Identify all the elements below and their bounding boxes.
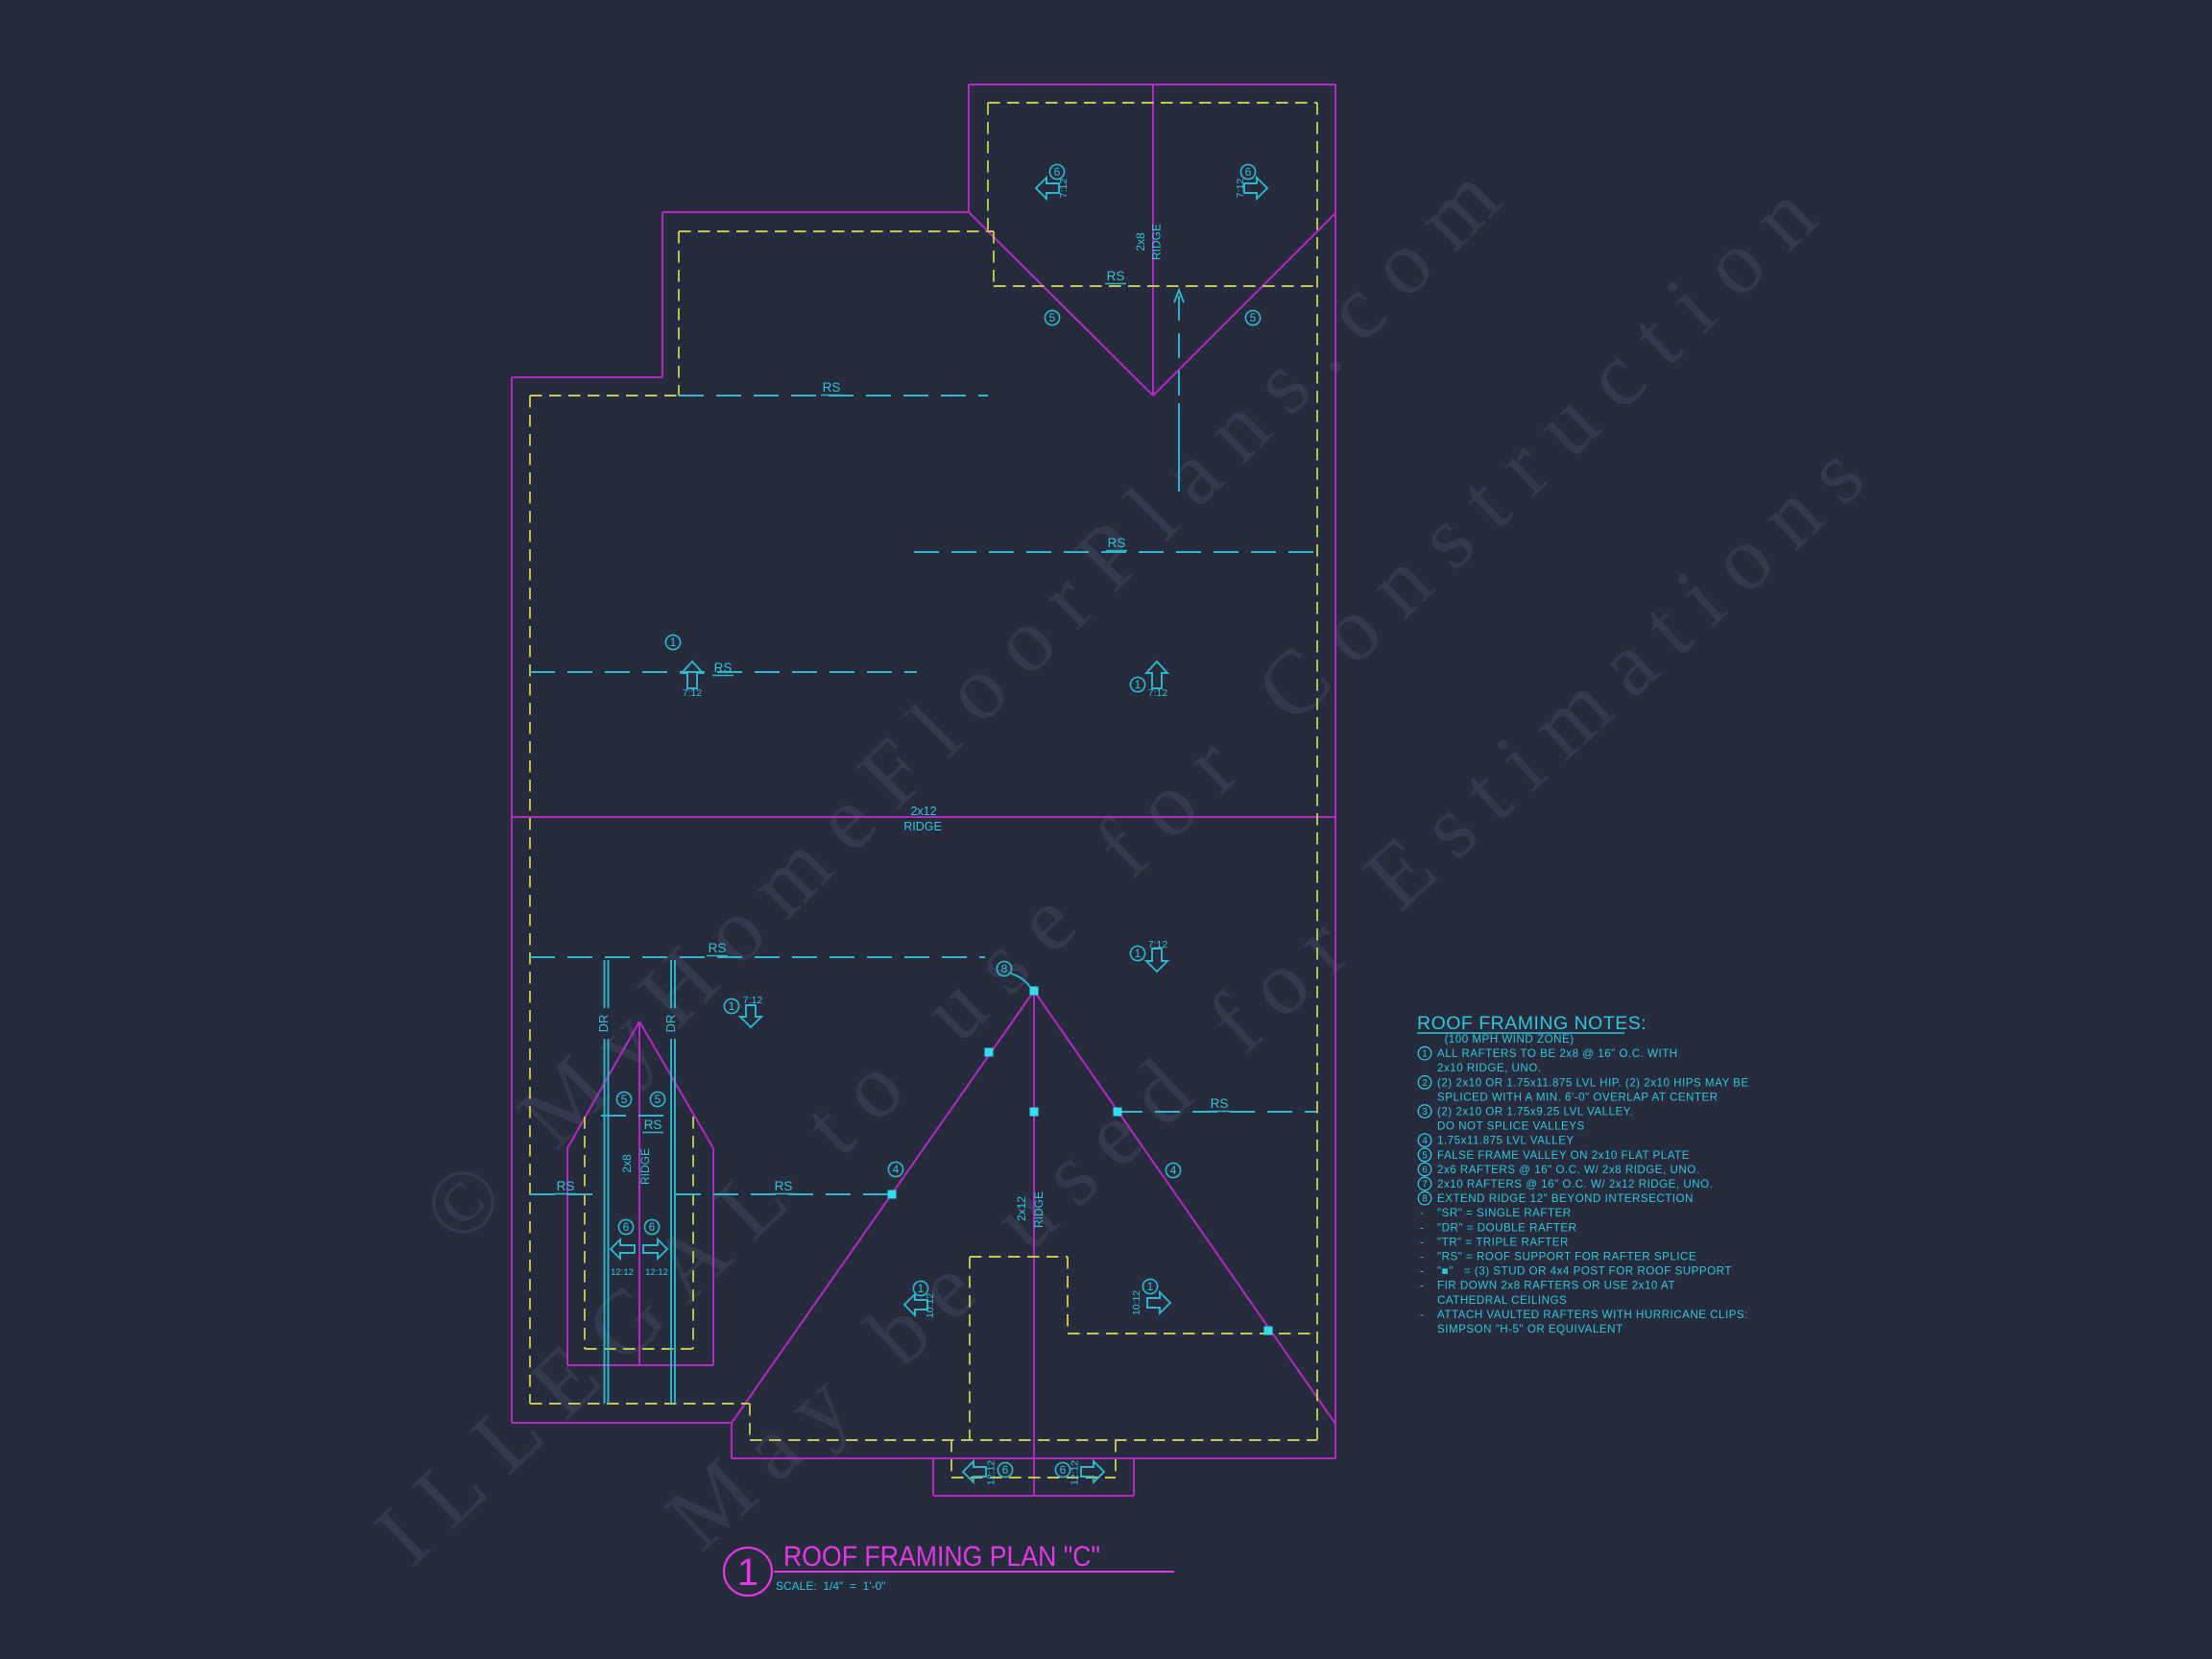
svg-text:-: - [1420,1265,1424,1278]
svg-text:2x10 RAFTERS @ 16" O.C. W/ 2x1: 2x10 RAFTERS @ 16" O.C. W/ 2x12 RIDGE, U… [1437,1178,1713,1190]
svg-text:1.75x11.875 LVL VALLEY: 1.75x11.875 LVL VALLEY [1437,1135,1575,1147]
svg-text:RS: RS [557,1179,575,1193]
svg-text:"SR" = SINGLE RAFTER: "SR" = SINGLE RAFTER [1437,1207,1572,1219]
svg-text:RIDGE: RIDGE [1150,224,1164,260]
svg-text:6: 6 [1054,165,1061,179]
svg-text:-: - [1420,1280,1424,1292]
svg-text:5: 5 [1250,311,1257,325]
svg-text:8: 8 [1422,1194,1428,1205]
svg-text:-: - [1420,1207,1424,1219]
svg-text:7:12: 7:12 [1148,939,1168,950]
svg-text:5: 5 [1422,1150,1428,1161]
svg-text:"TR" = TRIPLE RAFTER: "TR" = TRIPLE RAFTER [1437,1236,1569,1248]
svg-text:4: 4 [893,1163,900,1176]
svg-text:FIR DOWN 2x8 RAFTERS OR USE 2x: FIR DOWN 2x8 RAFTERS OR USE 2x10 AT [1437,1280,1675,1292]
svg-text:6: 6 [1245,165,1252,179]
svg-text:5: 5 [621,1093,628,1106]
svg-text:FALSE FRAME VALLEY ON 2x10 FLA: FALSE FRAME VALLEY ON 2x10 FLAT PLATE [1437,1149,1690,1162]
svg-text:2x8: 2x8 [1134,232,1147,252]
svg-text:2x12: 2x12 [910,805,936,818]
svg-text:DO NOT SPLICE VALLEYS: DO NOT SPLICE VALLEYS [1437,1120,1585,1133]
svg-text:6: 6 [1422,1165,1428,1175]
svg-text:-: - [1420,1251,1424,1263]
svg-text:CATHEDRAL CEILINGS: CATHEDRAL CEILINGS [1437,1294,1567,1307]
svg-text:-: - [1420,1236,1424,1248]
svg-text:SPLICED WITH A MIN. 6'-0" OVER: SPLICED WITH A MIN. 6'-0" OVERLAP AT CEN… [1437,1091,1719,1103]
svg-text:12:12: 12:12 [645,1267,668,1278]
svg-text:1: 1 [1147,1280,1154,1293]
svg-text:DR: DR [663,1015,678,1033]
svg-text:6: 6 [623,1220,630,1234]
svg-text:RS: RS [714,661,733,675]
svg-text:6: 6 [1060,1463,1067,1477]
svg-text:1: 1 [1135,678,1142,691]
svg-text:2x10 RIDGE, UNO.: 2x10 RIDGE, UNO. [1437,1062,1542,1074]
svg-text:10:12: 10:12 [1131,1290,1142,1315]
svg-text:RIDGE: RIDGE [1032,1191,1046,1228]
svg-text:ROOF FRAMING NOTES:: ROOF FRAMING NOTES: [1417,1013,1647,1034]
svg-text:10:12: 10:12 [925,1293,936,1318]
svg-text:RS: RS [775,1179,793,1193]
svg-text:6: 6 [649,1220,656,1234]
svg-text:12:12: 12:12 [1070,1460,1081,1485]
svg-text:RS: RS [709,941,727,955]
svg-text:-: - [1420,1309,1424,1321]
svg-text:"■" = (3) STUD OR 4x4 POST F: "■" = (3) STUD OR 4x4 POST FOR ROOF SUPP… [1437,1265,1732,1278]
svg-text:5: 5 [655,1093,661,1106]
svg-text:7:12: 7:12 [1235,179,1246,199]
svg-text:1: 1 [670,636,677,649]
svg-text:12:12: 12:12 [986,1460,998,1485]
svg-text:(2) 2x10 OR 1.75x11.875 LVL HI: (2) 2x10 OR 1.75x11.875 LVL HIP. (2) 2x1… [1437,1076,1749,1089]
svg-text:2x6 RAFTERS @ 16" O.C. W/ 2x8: 2x6 RAFTERS @ 16" O.C. W/ 2x8 RIDGE, UNO… [1437,1164,1699,1176]
svg-text:6: 6 [1002,1463,1009,1477]
svg-text:3: 3 [1422,1107,1428,1118]
svg-text:1: 1 [737,1551,758,1594]
svg-text:2x8: 2x8 [620,1154,634,1173]
svg-text:-: - [1420,1221,1424,1234]
svg-text:1: 1 [1422,1049,1428,1060]
svg-text:ROOF FRAMING PLAN "C": ROOF FRAMING PLAN "C" [783,1541,1100,1573]
svg-text:7: 7 [1422,1180,1428,1190]
svg-text:7:12: 7:12 [1148,687,1168,699]
svg-text:2: 2 [1422,1078,1428,1089]
svg-text:"DR" = DOUBLE RAFTER: "DR" = DOUBLE RAFTER [1437,1221,1576,1234]
svg-text:(100 MPH WIND ZONE): (100 MPH WIND ZONE) [1437,1033,1575,1046]
svg-text:RS: RS [1107,269,1125,283]
svg-text:1: 1 [1135,947,1142,960]
svg-text:(2) 2x10 OR 1.75x9.25 LVL VALL: (2) 2x10 OR 1.75x9.25 LVL VALLEY. [1437,1106,1633,1118]
svg-text:RS: RS [644,1118,662,1132]
svg-text:4: 4 [1422,1136,1428,1146]
svg-text:RIDGE: RIDGE [903,820,942,833]
svg-text:"RS" = ROOF SUPPORT FOR RAFTER: "RS" = ROOF SUPPORT FOR RAFTER SPLICE [1437,1251,1696,1263]
svg-text:SIMPSON "H-5" OR EQUIVALENT: SIMPSON "H-5" OR EQUIVALENT [1437,1323,1623,1335]
svg-text:7:12: 7:12 [683,687,703,699]
svg-text:ATTACH VAULTED RAFTERS WITH HU: ATTACH VAULTED RAFTERS WITH HURRICANE CL… [1437,1309,1748,1321]
svg-text:SCALE: 1/4" = 1'-0": SCALE: 1/4" = 1'-0" [776,1579,886,1593]
svg-text:4: 4 [1170,1164,1177,1177]
svg-text:RIDGE: RIDGE [638,1148,652,1185]
svg-text:5: 5 [1049,311,1056,325]
svg-text:7:12: 7:12 [1058,179,1070,199]
svg-text:RS: RS [823,380,841,395]
svg-text:DR: DR [596,1015,611,1033]
svg-text:RS: RS [1108,536,1126,550]
svg-text:8: 8 [1001,962,1008,975]
svg-text:RS: RS [1211,1096,1229,1111]
svg-text:EXTEND RIDGE 12" BEYOND INTERS: EXTEND RIDGE 12" BEYOND INTERSECTION [1437,1192,1694,1205]
svg-text:1: 1 [918,1282,925,1295]
svg-text:1: 1 [729,999,735,1013]
svg-text:12:12: 12:12 [611,1267,634,1278]
svg-text:7:12: 7:12 [743,995,763,1006]
svg-text:2x12: 2x12 [1015,1196,1028,1221]
svg-text:ALL RAFTERS TO BE 2x8 @ 16" O.: ALL RAFTERS TO BE 2x8 @ 16" O.C. WITH [1437,1047,1678,1060]
